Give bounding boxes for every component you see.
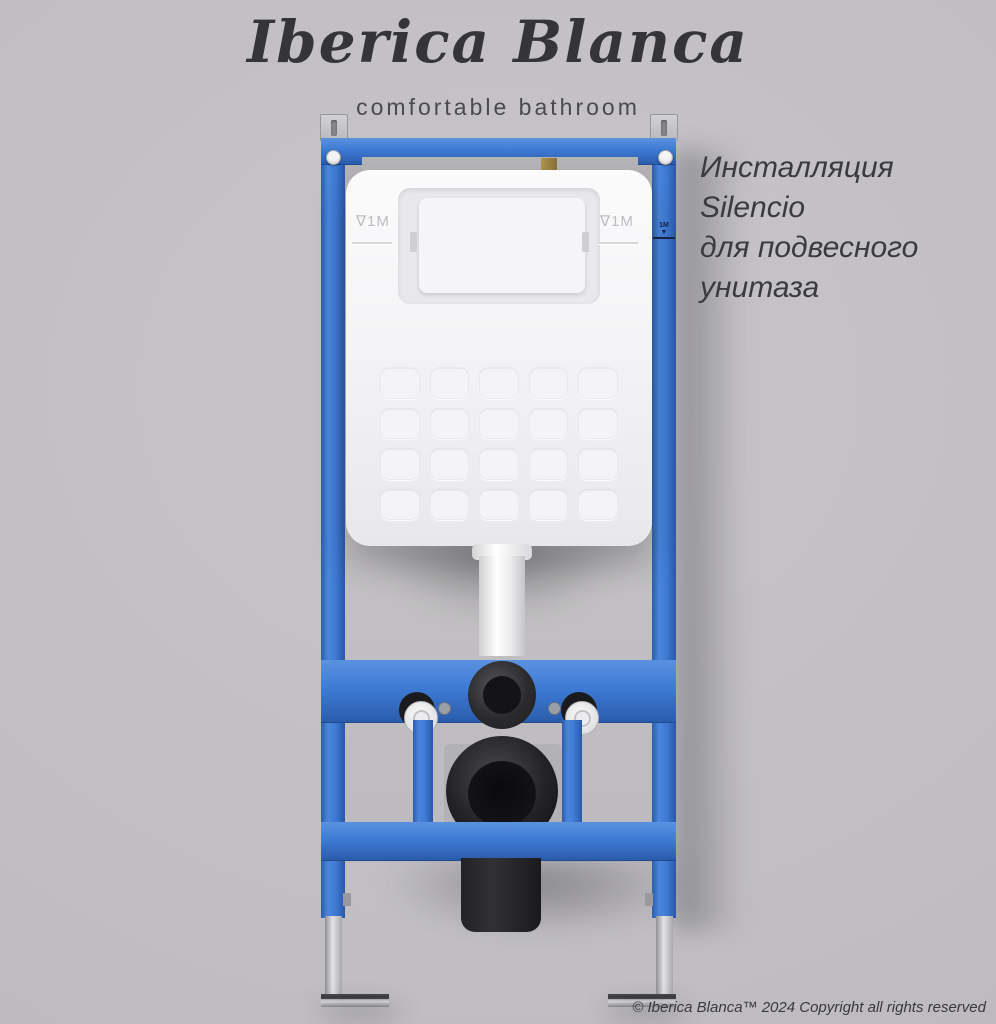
cistern-mark-right-line: [598, 242, 638, 245]
brand-tagline: comfortable bathroom: [0, 94, 996, 121]
texture-square: [479, 490, 519, 521]
rail-meter-mark: 1M ▼: [653, 222, 675, 239]
bolt-hole-right: [548, 702, 561, 715]
texture-square: [529, 490, 569, 521]
bolt-hole-left: [438, 702, 451, 715]
leg-clip-right: [645, 893, 653, 906]
product-title: Инсталляция Silencio для подвесного унит…: [700, 148, 990, 308]
texture-square: [380, 490, 420, 521]
cistern-mark-left: ∇1M: [356, 212, 390, 230]
plate-clip-left: [410, 232, 417, 252]
rail-meter-line: [653, 237, 675, 239]
texture-square: [578, 490, 618, 521]
product-title-line: для подвесного: [700, 228, 990, 268]
cistern-body: ∇1M ∇1M: [346, 170, 652, 546]
texture-square: [479, 449, 519, 480]
screw-top-right: [658, 150, 673, 165]
texture-square: [380, 409, 420, 440]
foot-tube-right: [656, 916, 673, 1002]
texture-square: [529, 409, 569, 440]
copyright-notice: © Iberica Blanca™ 2024 Copyright all rig…: [632, 999, 986, 1016]
cistern-mark-left-line: [352, 242, 392, 245]
foot-tube-left: [325, 916, 342, 1002]
flush-pipe: [479, 556, 525, 672]
product-title-line: унитаза: [700, 268, 990, 308]
texture-square: [380, 368, 420, 399]
frame-bottom-crossbar: [321, 822, 676, 861]
product-card: 1M ▼ ∇1M ∇1M: [0, 0, 996, 1024]
product-title-line: Инсталляция: [700, 148, 990, 188]
texture-square: [578, 409, 618, 440]
texture-square: [380, 449, 420, 480]
screw-top-left: [326, 150, 341, 165]
texture-square: [479, 368, 519, 399]
texture-square: [430, 368, 470, 399]
support-strap-left: [413, 720, 433, 828]
plate-clip-right: [582, 232, 589, 252]
waste-outlet-hole: [468, 761, 536, 827]
brand-logo: Iberica Blanca: [0, 8, 996, 76]
texture-square: [479, 409, 519, 440]
bracket-slot-icon: [331, 120, 337, 136]
support-strap-right: [562, 720, 582, 828]
cistern-mark-right: ∇1M: [600, 212, 634, 230]
texture-square: [430, 449, 470, 480]
texture-square: [529, 449, 569, 480]
frame-right-rail: [652, 138, 676, 918]
cistern-texture-grid: [380, 368, 618, 520]
frame-left-rail: [321, 138, 345, 918]
texture-square: [430, 409, 470, 440]
flush-plate-cover: [419, 198, 585, 293]
waste-down-pipe: [461, 858, 541, 932]
leg-clip-left: [343, 893, 351, 906]
foot-shadow-left: [318, 1006, 402, 1016]
flush-elbow-hole: [483, 676, 521, 714]
texture-square: [578, 368, 618, 399]
texture-square: [578, 449, 618, 480]
arrow-down-icon: ▼: [653, 229, 675, 236]
bracket-slot-icon: [661, 120, 667, 136]
texture-square: [529, 368, 569, 399]
texture-square: [430, 490, 470, 521]
rail-meter-label: 1M: [653, 222, 675, 229]
product-title-line: Silencio: [700, 188, 990, 228]
